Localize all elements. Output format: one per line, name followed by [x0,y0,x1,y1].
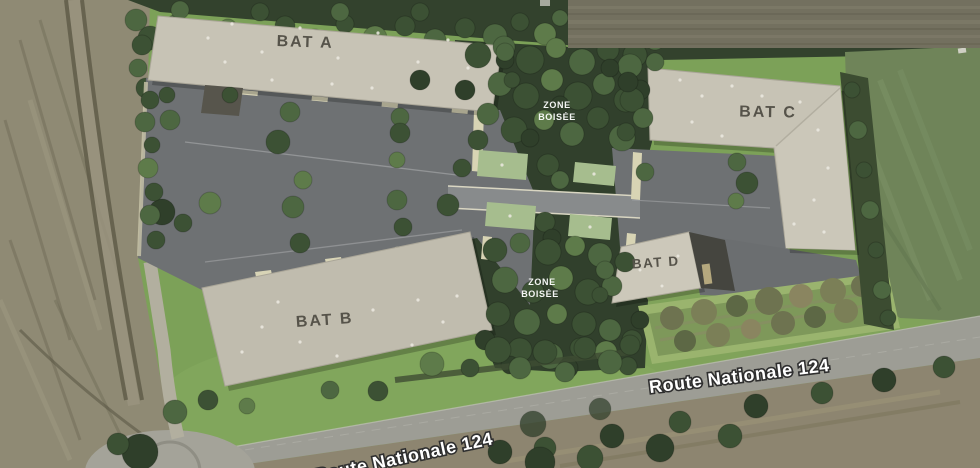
site-plan-canvas: BAT A BAT B BAT C BAT D ZONE BOISÉE ZONE… [0,0,980,468]
redaction-bar [540,0,980,48]
svg-text:BOISÉE: BOISÉE [521,289,559,299]
svg-text:BOISÉE: BOISÉE [538,112,576,122]
label-bat-a: BAT A [276,33,334,52]
svg-text:ZONE: ZONE [543,100,570,110]
svg-text:ZONE: ZONE [528,277,555,287]
label-bat-c: BAT C [739,103,797,121]
aerial-site-plan: BAT A BAT B BAT C BAT D ZONE BOISÉE ZONE… [0,0,980,468]
